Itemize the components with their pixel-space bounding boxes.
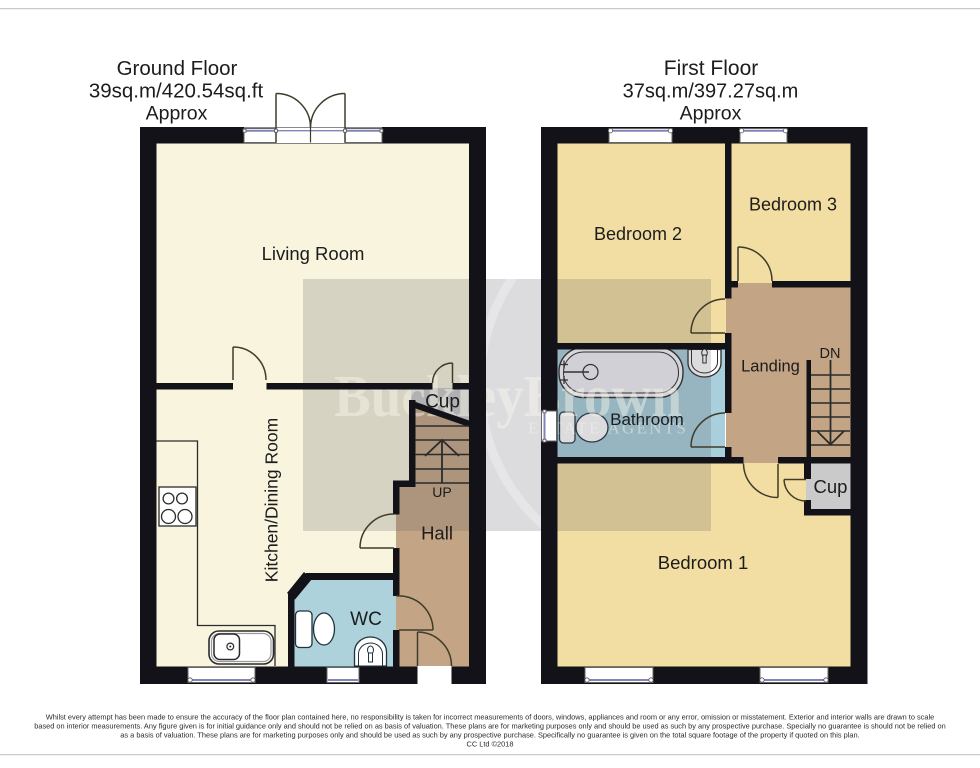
svg-text:DN: DN xyxy=(820,346,841,362)
svg-text:Bedroom 1: Bedroom 1 xyxy=(658,552,749,573)
svg-text:Bedroom 3: Bedroom 3 xyxy=(749,195,837,215)
svg-text:Cup: Cup xyxy=(814,476,848,497)
svg-text:Kitchen/Dining Room: Kitchen/Dining Room xyxy=(262,418,282,582)
svg-text:39sq.m/420.54sq.ft: 39sq.m/420.54sq.ft xyxy=(89,80,264,103)
svg-text:Approx: Approx xyxy=(680,103,742,125)
svg-text:Hall: Hall xyxy=(421,523,453,544)
svg-text:Cup: Cup xyxy=(425,392,460,413)
svg-text:37sq.m/397.27sq.m: 37sq.m/397.27sq.m xyxy=(623,81,799,103)
svg-text:Bedroom 2: Bedroom 2 xyxy=(594,224,682,244)
svg-text:Approx: Approx xyxy=(146,103,208,125)
svg-text:Whilst every attempt has been: Whilst every attempt has been made to en… xyxy=(46,713,935,722)
svg-text:as a basis of valuation. These: as a basis of valuation. These plans are… xyxy=(120,731,859,740)
svg-text:UP: UP xyxy=(432,484,451,500)
svg-text:Ground Floor: Ground Floor xyxy=(117,57,238,80)
svg-text:based on interior measurements: based on interior measurements. Any figu… xyxy=(34,722,946,731)
svg-text:Living Room: Living Room xyxy=(262,243,365,264)
svg-text:WC: WC xyxy=(350,609,382,630)
svg-text:Bathroom: Bathroom xyxy=(610,410,684,429)
svg-text:Landing: Landing xyxy=(741,358,800,376)
svg-text:First Floor: First Floor xyxy=(664,57,759,80)
svg-text:CC Ltd ©2018: CC Ltd ©2018 xyxy=(467,740,514,749)
